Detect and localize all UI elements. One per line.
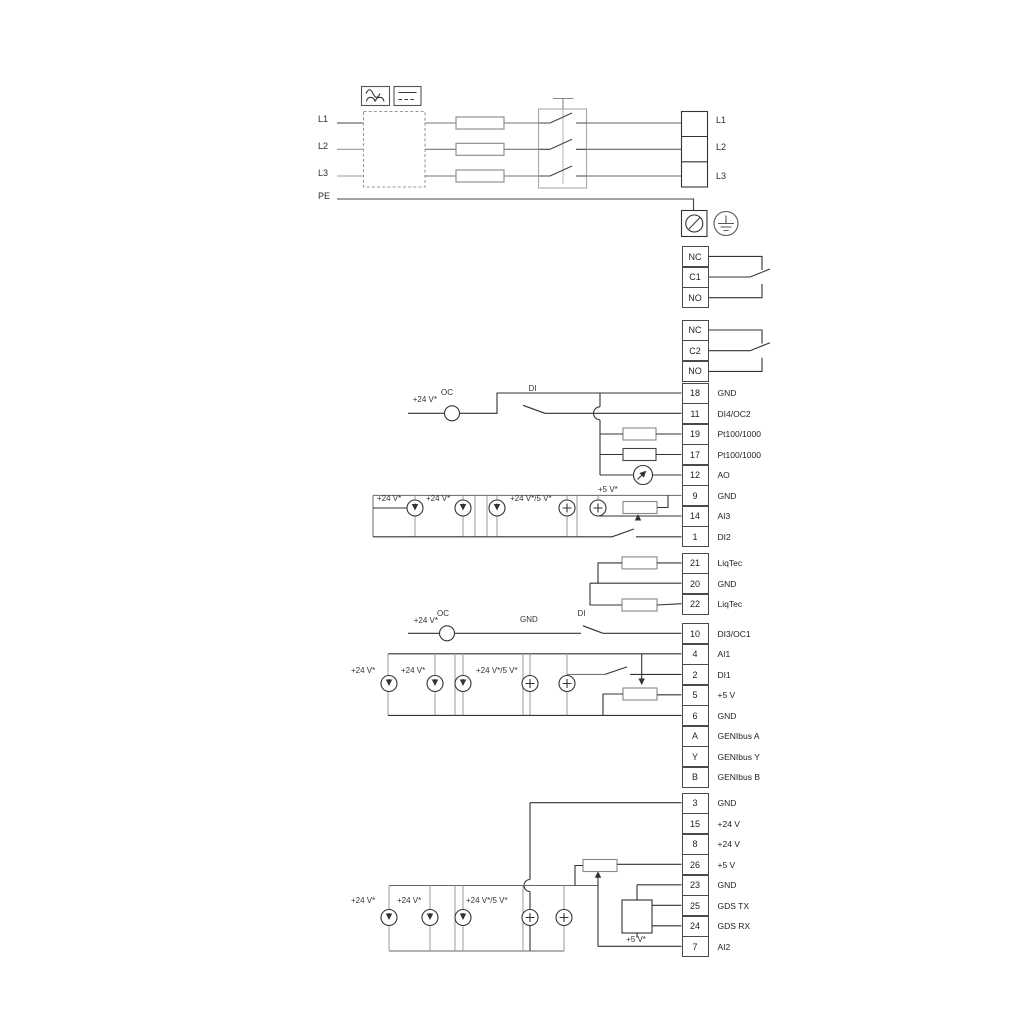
- terminal-cell: 18: [682, 383, 709, 404]
- di3-supply-label: +24 V*: [402, 617, 438, 625]
- oc-source-icon: [445, 406, 460, 421]
- terminal-cell: 2: [682, 664, 709, 685]
- terminal-cell: 12: [682, 465, 709, 486]
- current-source-icon: [427, 676, 443, 692]
- emc-filter-box: [364, 112, 426, 188]
- ai2-supply-label: +24 V*/5 V*: [466, 897, 508, 905]
- terminal-label: GND: [718, 798, 737, 808]
- terminal-cell: 9: [682, 485, 709, 506]
- ai2-supply-label: +24 V*: [351, 897, 375, 905]
- terminal-cell: Y: [682, 746, 709, 767]
- input-label-l1: L1: [318, 114, 328, 124]
- ai2-gds-circuit: [381, 803, 682, 951]
- terminal-label: DI2: [718, 532, 731, 542]
- terminal-cell: 10: [682, 623, 709, 644]
- terminal-cell: 21: [682, 553, 709, 574]
- input-label-l3: L3: [318, 168, 328, 178]
- sensor-plus-icon: [556, 910, 572, 926]
- terminal-cell: 6: [682, 705, 709, 726]
- terminal-label: +5 V: [718, 860, 736, 870]
- current-source-icon: [381, 676, 397, 692]
- terminal-label: Pt100/1000: [718, 429, 761, 439]
- terminal-cell: 26: [682, 854, 709, 875]
- di4-di-label: DI: [529, 385, 537, 393]
- terminal-cell: 15: [682, 813, 709, 834]
- terminal-cell: 7: [682, 936, 709, 957]
- sensor-plus-icon: [590, 500, 606, 516]
- input-label-pe: PE: [318, 191, 330, 201]
- terminal-label: GDS TX: [718, 901, 750, 911]
- ai3-5v-label: +5 V*: [598, 486, 618, 494]
- earth-icon: [714, 212, 738, 236]
- terminal-label: GENIbus B: [718, 772, 761, 782]
- wire-hop: [524, 803, 530, 951]
- di2-switch-icon: [373, 529, 682, 537]
- terminal-cell: NC: [682, 246, 709, 267]
- terminal-cell: 23: [682, 875, 709, 896]
- di1-switch-icon: [605, 667, 682, 675]
- fuse-symbols: [456, 117, 504, 182]
- terminal-label: +24 V: [718, 819, 740, 829]
- di3-di-label: DI: [578, 610, 586, 618]
- terminal-label: AI1: [718, 649, 731, 659]
- terminal-label: DI1: [718, 670, 731, 680]
- sensor-plus-icon: [522, 676, 538, 692]
- di-switch-icon: [523, 405, 682, 413]
- current-source-icon: [407, 500, 423, 516]
- pt100-resistor-icon: [623, 428, 656, 440]
- current-source-icon: [489, 500, 505, 516]
- di3-oc-label: OC: [437, 610, 449, 618]
- ai3-supply-label: +24 V*/5 V*: [510, 495, 552, 503]
- terminal-cell: B: [682, 767, 709, 788]
- terminal-cell: 1: [682, 526, 709, 547]
- relay2-contact: [709, 330, 771, 371]
- terminal-cell: 25: [682, 895, 709, 916]
- di4-oc2-circuit: [408, 393, 682, 485]
- rcd-type-a-icon: [362, 87, 390, 106]
- liqtec-sensor-icon: [622, 557, 657, 569]
- ai1-di1-circuit: [381, 654, 682, 716]
- terminal-cell: 22: [682, 594, 709, 615]
- terminal-cell: 3: [682, 793, 709, 814]
- supply-terminal-block: [682, 112, 708, 188]
- terminal-cell: C2: [682, 340, 709, 361]
- liqtec-circuit: [590, 557, 682, 611]
- terminal-label: GND: [718, 880, 737, 890]
- pe-wire: [337, 199, 694, 211]
- current-source-icon: [455, 910, 471, 926]
- ai3-supply-label: +24 V*: [426, 495, 450, 503]
- terminal-label: LiqTec: [718, 558, 743, 568]
- ai3-supply-label: +24 V*: [377, 495, 401, 503]
- current-source-icon: [455, 500, 471, 516]
- potentiometer-icon: [623, 688, 657, 700]
- current-source-icon: [455, 676, 471, 692]
- gds-5v-label: +5 V*: [620, 936, 652, 944]
- terminal-label: AO: [718, 470, 730, 480]
- terminal-label: GDS RX: [718, 921, 751, 931]
- current-source-icon: [422, 910, 438, 926]
- terminal-cell: 5: [682, 685, 709, 706]
- di-switch-icon: [583, 626, 682, 634]
- relay1-contact: [709, 256, 771, 297]
- terminal-cell: A: [682, 726, 709, 747]
- terminal-cell: 17: [682, 444, 709, 465]
- pe-screw-terminal-icon: [682, 211, 708, 237]
- sensor-plus-icon: [559, 500, 575, 516]
- oc-source-icon: [440, 626, 455, 641]
- terminal-label: AI3: [718, 511, 731, 521]
- output-label-l1: L1: [716, 115, 726, 125]
- power-section: [337, 87, 738, 237]
- terminal-cell: NO: [682, 361, 709, 382]
- di3-oc1-circuit: [408, 626, 682, 641]
- terminal-label: GND: [718, 388, 737, 398]
- terminal-label: GENIbus A: [718, 731, 760, 741]
- potentiometer-icon: [623, 502, 657, 514]
- ai1-supply-label: +24 V*: [401, 667, 425, 675]
- terminal-label: GND: [718, 491, 737, 501]
- terminal-cell: C1: [682, 267, 709, 288]
- terminal-cell: NC: [682, 320, 709, 341]
- terminal-label: LiqTec: [718, 599, 743, 609]
- sensor-plus-icon: [522, 910, 538, 926]
- wiring-diagram-svg: [0, 0, 1024, 1024]
- current-source-icon: [381, 910, 397, 926]
- output-label-l2: L2: [716, 142, 726, 152]
- terminal-label: DI3/OC1: [718, 629, 751, 639]
- terminal-label: Pt100/1000: [718, 450, 761, 460]
- terminal-label: AI2: [718, 942, 731, 952]
- ai2-supply-label: +24 V*: [397, 897, 421, 905]
- terminal-cell: 19: [682, 424, 709, 445]
- pt100-resistor-icon: [623, 449, 656, 461]
- di3-gnd-label: GND: [520, 616, 538, 624]
- terminal-label: +24 V: [718, 839, 740, 849]
- terminal-label: DI4/OC2: [718, 409, 751, 419]
- ao-gauge-icon: [634, 466, 653, 485]
- terminal-cell: NO: [682, 287, 709, 308]
- di4-oc-label: OC: [441, 389, 453, 397]
- ai1-supply-label: +24 V*: [351, 667, 375, 675]
- terminal-label: GND: [718, 579, 737, 589]
- terminal-cell: 24: [682, 916, 709, 937]
- terminal-cell: 4: [682, 644, 709, 665]
- sensor-plus-icon: [559, 676, 575, 692]
- terminal-label: GND: [718, 711, 737, 721]
- ai1-supply-label: +24 V*/5 V*: [476, 667, 518, 675]
- terminal-cell: 8: [682, 834, 709, 855]
- output-label-l3: L3: [716, 171, 726, 181]
- liqtec-sensor-icon: [622, 599, 657, 611]
- gds-sensor-box: [622, 900, 652, 933]
- wiring-diagram-page: L1 L2 L3 PE L1 L2 L3 NC C1 NO NC C2 NO 1…: [0, 0, 1024, 1024]
- terminal-cell: 11: [682, 403, 709, 424]
- terminal-cell: 20: [682, 573, 709, 594]
- disconnect-switch: [539, 99, 587, 189]
- wire-hop: [594, 393, 601, 475]
- di4-supply-label: +24 V*: [400, 396, 437, 404]
- terminal-label: GENIbus Y: [718, 752, 760, 762]
- input-label-l2: L2: [318, 141, 328, 151]
- potentiometer-icon: [583, 860, 617, 872]
- terminal-cell: 14: [682, 506, 709, 527]
- terminal-label: +5 V: [718, 690, 736, 700]
- rcd-type-b-icon: [394, 87, 421, 106]
